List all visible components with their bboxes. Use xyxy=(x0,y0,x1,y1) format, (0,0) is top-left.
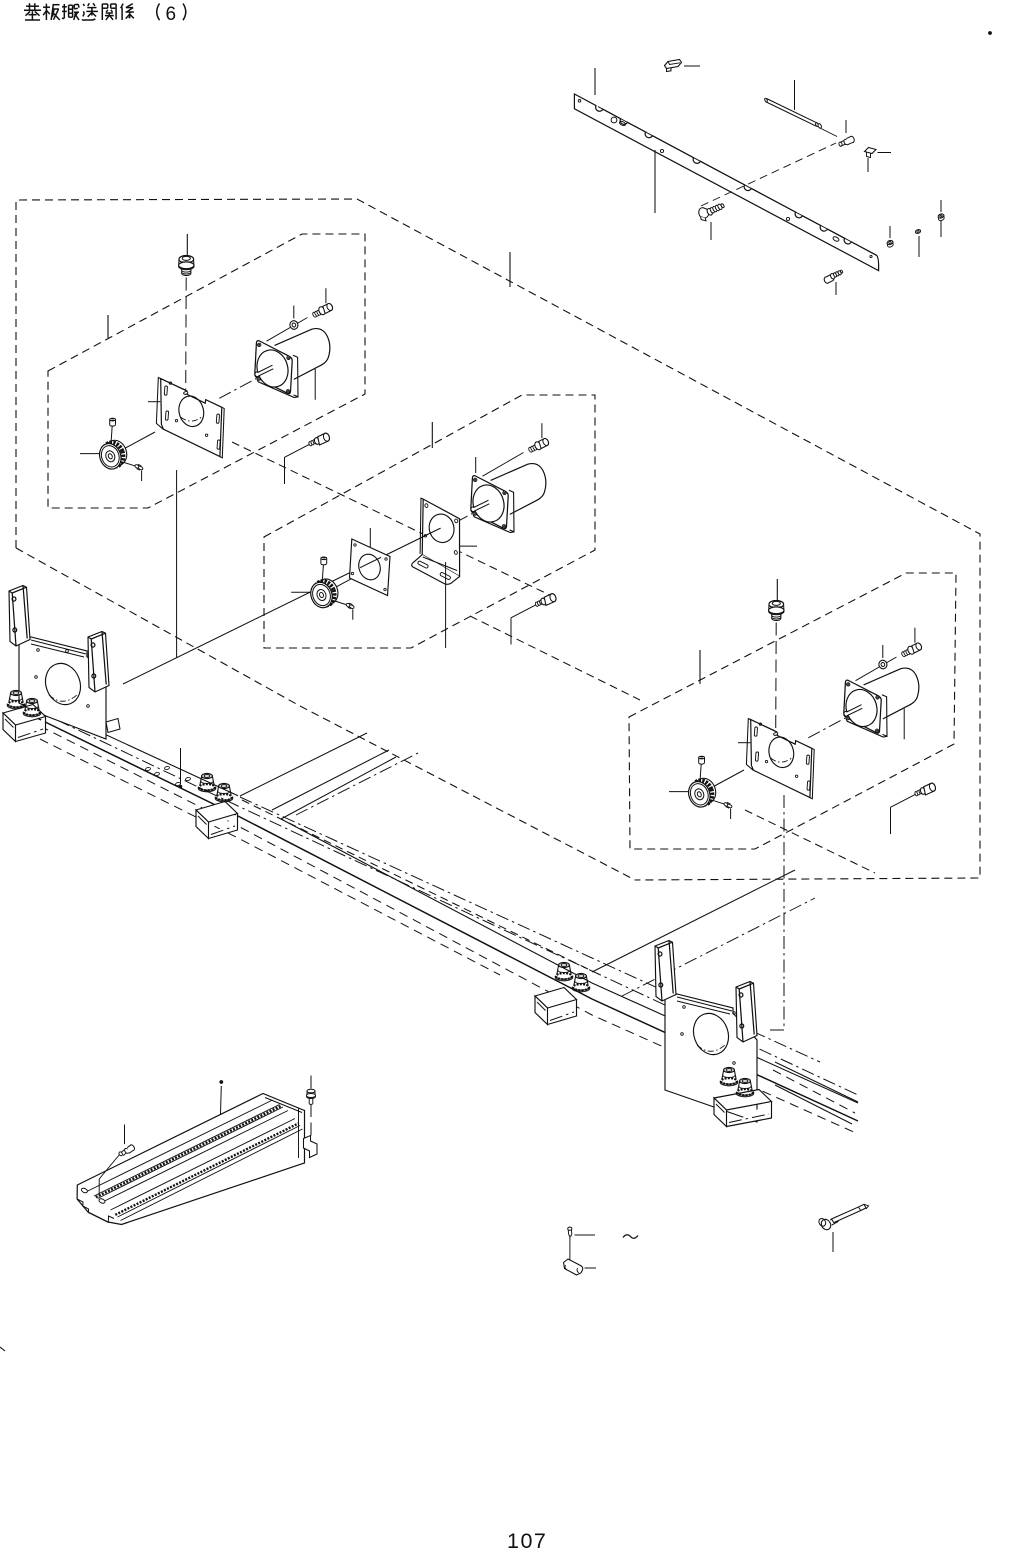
svg-text:107: 107 xyxy=(507,1529,547,1553)
svg-text:6: 6 xyxy=(166,4,177,25)
